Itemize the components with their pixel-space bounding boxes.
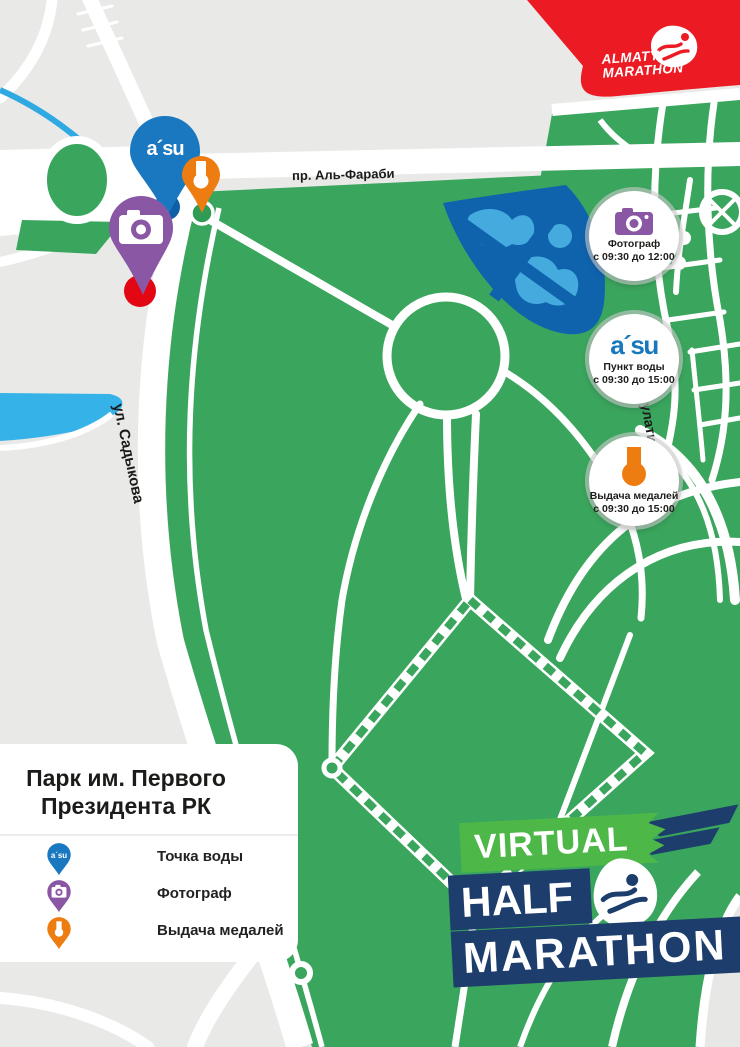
half-block: HALF <box>448 868 593 930</box>
almaty-logo-text: ALMATY MARATHON <box>601 47 684 81</box>
legend-item-medals: Выдача медалей <box>0 914 298 951</box>
badge-title: Выдача медалей <box>590 490 679 503</box>
asu-mini-logo: a´su <box>51 851 67 860</box>
badge-time: с 09:30 до 15:00 <box>593 503 674 516</box>
almaty-marathon-logo: ALMATY MARATHON <box>518 0 740 110</box>
badge-time: с 09:30 до 15:00 <box>593 374 674 387</box>
legend-label: Выдача медалей <box>157 922 284 939</box>
legend-panel: Парк им. Первого Президента РК a´su Точк… <box>0 744 298 962</box>
legend-item-photographer: Фотограф <box>0 877 298 914</box>
virtual-half-marathon-logo: VIRTUAL HALF MARATHON <box>442 798 740 993</box>
park-title-line1: Парк им. Первого <box>0 764 252 792</box>
badge-title: Пункт воды <box>603 361 664 374</box>
park-title-line2: Президента РК <box>0 792 252 820</box>
legend-label: Фотограф <box>157 885 232 902</box>
badge-medals: Выдача медалей с 09:30 до 15:00 <box>589 436 679 526</box>
legend-label: Точка воды <box>157 848 243 865</box>
badge-water-point: a´su Пункт воды с 09:30 до 15:00 <box>589 314 679 404</box>
legend-items: a´su Точка воды Фотограф <box>0 840 298 951</box>
medal-icon <box>619 447 649 487</box>
camera-icon <box>119 210 163 244</box>
legend-divider <box>0 834 298 836</box>
street-label-al-farabi: пр. Аль-Фараби <box>292 166 395 183</box>
asu-pin-icon: a´su <box>46 842 72 876</box>
medal-pin-icon <box>46 916 72 950</box>
marathon-map-poster: пр. Аль-Фараби ул. Садыкова ул. Дулати a… <box>0 0 740 1047</box>
badge-title: Фотограф <box>608 238 660 251</box>
asu-pin-logo: a´su <box>133 138 197 161</box>
badge-time: с 09:30 до 12:00 <box>593 251 674 264</box>
badge-photographer: Фотограф с 09:30 до 12:00 <box>589 191 679 281</box>
camera-pin-icon <box>46 879 72 913</box>
camera-icon <box>615 208 653 235</box>
park-title: Парк им. Первого Президента РК <box>0 764 252 820</box>
asu-logo: a´su <box>610 332 657 358</box>
legend-item-water: a´su Точка воды <box>0 840 298 877</box>
path-node <box>292 964 310 982</box>
